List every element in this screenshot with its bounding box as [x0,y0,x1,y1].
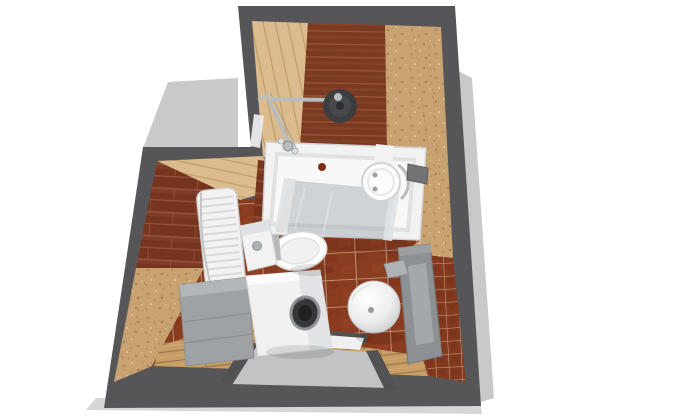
flush-button[interactable] [253,242,262,251]
bathtub-drain [318,163,326,171]
shower-head-joint [334,93,342,101]
mixer-handle-left [278,138,284,144]
washbasin[interactable]: Washbasin [348,281,400,333]
washbasin-drain [368,307,374,313]
storage-cabinet[interactable]: Storage cabinet [179,277,254,366]
washing-machine[interactable]: Washing machine [246,270,332,356]
mixer-handle-right [292,148,298,154]
mixer-valve [283,141,293,151]
alcove-north-wall [300,23,387,150]
bathroom-render-viewport: 3D top-down render of a small bathroom f… [0,0,700,417]
wall-niche[interactable]: Wall niche [407,164,428,184]
